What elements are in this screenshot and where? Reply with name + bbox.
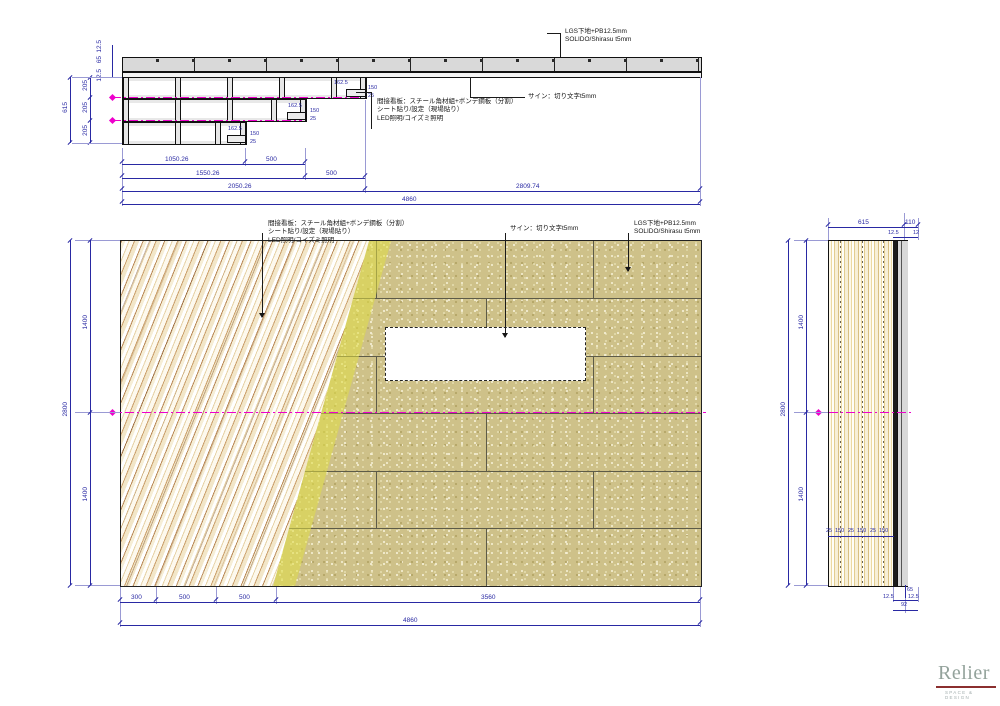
dim-label: 25 [870,529,876,535]
plan-panel-fixings [123,59,701,62]
dim-label: 300 [131,595,142,602]
dim-label: 25 [250,140,256,146]
leader-arrow [502,333,508,338]
note-sign-plan: サイン：切り文字t5mm [528,93,596,101]
dim-line [905,585,906,598]
side-view [828,240,908,587]
dim-label: 25 [826,529,832,535]
plan-end-bracket-3 [227,135,246,143]
dim-label: 500 [266,157,277,164]
dim-label: 12.5 [97,69,104,82]
leader-line [470,77,471,97]
dim-label: 92 [901,603,907,609]
dim-label: 500 [179,595,190,602]
leader-arrow [625,267,631,272]
plan-end-bracket-1 [346,89,366,97]
dim-label: 12.5 [908,595,919,601]
dim-label: 205 [83,102,90,113]
note-kanban-plan: 間接看板：スチール角材組+ボンデ鋼板（分割） シート貼り/設定（現場貼り） LE… [377,98,517,123]
logo-underline [936,686,996,688]
dim-label: 4860 [402,197,416,204]
dim-line [893,610,918,611]
plan-frame-row-2 [122,99,307,122]
note-kanban-elev: 間接看板：スチール角材組+ボンデ鋼板（分割） シート貼り/設定（現場貼り） LE… [268,220,408,245]
dim-label: 205 [83,80,90,91]
dim-line [122,204,700,205]
plan-frame-row-1 [122,77,367,99]
side-pb-layer [897,241,908,586]
dim-label: 2800 [63,402,70,416]
dim-label: 150 [879,529,888,535]
plan-centerline-marker-1 [109,94,116,101]
dim-label: 1550.26 [196,171,220,178]
dim-label: 150 [857,529,866,535]
plan-end-bracket-2 [287,112,306,120]
leader-line [547,33,561,34]
dim-line [788,240,789,585]
dim-label: 2050.26 [228,184,252,191]
dim-line [828,536,894,537]
note-lgs-elev: LGS下地+PB12.5mm SOLIDO/Shirasu t5mm [634,220,700,237]
dim-label: 12.5 [97,40,104,53]
leader-line [505,233,506,337]
dim-label: 2800 [781,402,788,416]
dim-label: 500 [239,595,250,602]
dim-label: 65 [97,56,104,63]
dim-label: 12 [913,231,919,237]
dim-line [122,191,700,192]
sign-cutout [385,327,586,381]
plan-centerline-marker-2 [109,117,116,124]
leader-line [371,92,372,129]
leader-line [262,233,263,317]
leader-line [356,92,372,93]
dim-label: 25 [848,529,854,535]
dim-label: 1050.26 [165,157,189,164]
dim-label: 205 [83,125,90,136]
dim-line [120,625,700,626]
logo-relier: Relier [938,662,990,685]
dim-label: 110 [905,220,915,227]
dim-label: 162.5 [228,127,242,133]
dim-label: 12.5 [888,231,899,237]
dim-label: 615 [63,102,70,113]
dim-label: 12.5 [883,595,894,601]
elevation-centerline [108,412,706,413]
dim-line [112,45,113,77]
cad-drawing-sheet: 162.5 150 25 162.5 150 25 162.5 150 25 1… [0,0,1000,706]
leader-line [560,33,561,57]
note-lgs-plan: LGS下地+PB12.5mm SOLIDO/Shirasu t5mm [565,28,631,45]
dim-label: 1400 [83,315,90,329]
plan-centerline-2 [112,120,302,121]
dim-line [70,77,71,143]
logo-tagline: SPACE & DESIGN [945,690,1000,700]
dim-label: 1400 [799,315,806,329]
dim-line [122,164,305,165]
plan-centerline-1 [112,97,362,98]
dim-label: 162.5 [334,81,348,87]
dim-line [122,178,365,179]
dim-label: 2809.74 [516,184,540,191]
dim-label: 150 [368,86,377,92]
dim-label: 25 [310,117,316,123]
dim-label: 1400 [83,487,90,501]
dim-label: 615 [858,220,869,227]
dim-label: 150 [250,132,259,138]
dim-label: 4860 [403,618,417,625]
dim-line [828,227,918,228]
dim-label: 500 [326,171,337,178]
note-sign-elev: サイン：切り文字t5mm [510,225,578,233]
dim-label: 150 [310,109,319,115]
dim-label: 65 [907,588,913,594]
dim-label: 150 [835,529,844,535]
dim-line [70,240,71,585]
dim-line [90,77,91,143]
elevation-view [120,240,702,587]
leader-line [628,233,629,271]
dim-line [120,602,700,603]
plan-panel-strip [122,57,702,72]
dim-label: 162.5 [288,104,302,110]
dim-line [893,237,918,238]
dim-label: 3560 [481,595,495,602]
dim-label: 1400 [799,487,806,501]
leader-arrow [259,313,265,318]
